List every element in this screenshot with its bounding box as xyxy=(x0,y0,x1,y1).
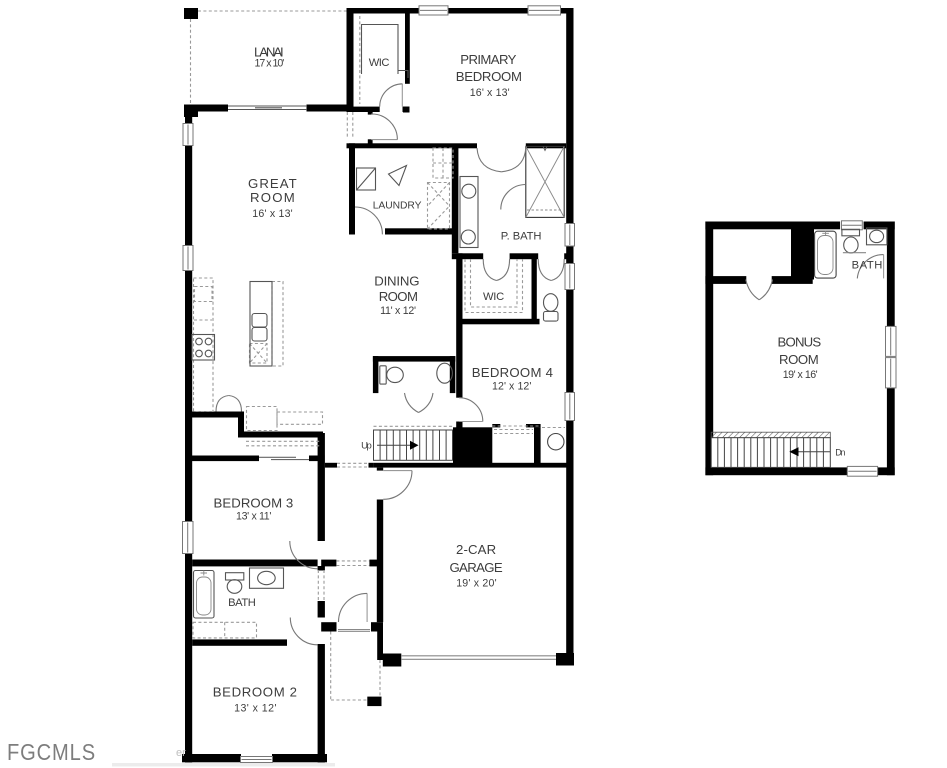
svg-text:ROOM: ROOM xyxy=(779,352,820,367)
svg-text:16' x 13': 16' x 13' xyxy=(252,208,293,220)
svg-text:BEDROOM 4: BEDROOM 4 xyxy=(472,365,555,380)
svg-text:GARAGE: GARAGE xyxy=(449,560,504,575)
svg-text:DINING: DINING xyxy=(374,274,421,289)
svg-text:er: er xyxy=(176,747,186,759)
svg-text:FGCMLS: FGCMLS xyxy=(7,739,96,765)
svg-text:19' x 20': 19' x 20' xyxy=(456,578,497,590)
svg-text:WIC: WIC xyxy=(369,57,391,69)
svg-text:Dn: Dn xyxy=(835,448,846,458)
svg-text:13' x 12': 13' x 12' xyxy=(234,703,277,715)
svg-text:ROOM: ROOM xyxy=(250,190,296,205)
svg-text:Up: Up xyxy=(361,441,372,452)
svg-text:BEDROOM 2: BEDROOM 2 xyxy=(213,685,299,700)
svg-text:12' x 12': 12' x 12' xyxy=(492,381,532,393)
svg-text:WIC: WIC xyxy=(483,291,505,303)
svg-text:13' x 11': 13' x 11' xyxy=(236,511,272,523)
svg-text:GREAT: GREAT xyxy=(248,176,298,191)
svg-text:BONUS: BONUS xyxy=(778,335,823,350)
svg-text:16' x 13': 16' x 13' xyxy=(470,87,511,99)
svg-text:2-CAR: 2-CAR xyxy=(456,542,498,557)
svg-text:PRIMARY: PRIMARY xyxy=(460,52,518,67)
svg-text:BATH: BATH xyxy=(228,597,257,609)
svg-text:ROOM: ROOM xyxy=(379,289,420,304)
svg-text:LAUNDRY: LAUNDRY xyxy=(373,201,423,212)
svg-text:BATH: BATH xyxy=(852,260,884,272)
svg-text:19' x 16': 19' x 16' xyxy=(783,369,819,381)
svg-text:17 x 10': 17 x 10' xyxy=(255,58,285,70)
svg-text:P. BATH: P. BATH xyxy=(501,231,543,243)
svg-text:BEDROOM: BEDROOM xyxy=(456,69,524,84)
svg-text:BEDROOM 3: BEDROOM 3 xyxy=(214,496,295,511)
svg-text:11' x 12': 11' x 12' xyxy=(380,305,417,317)
